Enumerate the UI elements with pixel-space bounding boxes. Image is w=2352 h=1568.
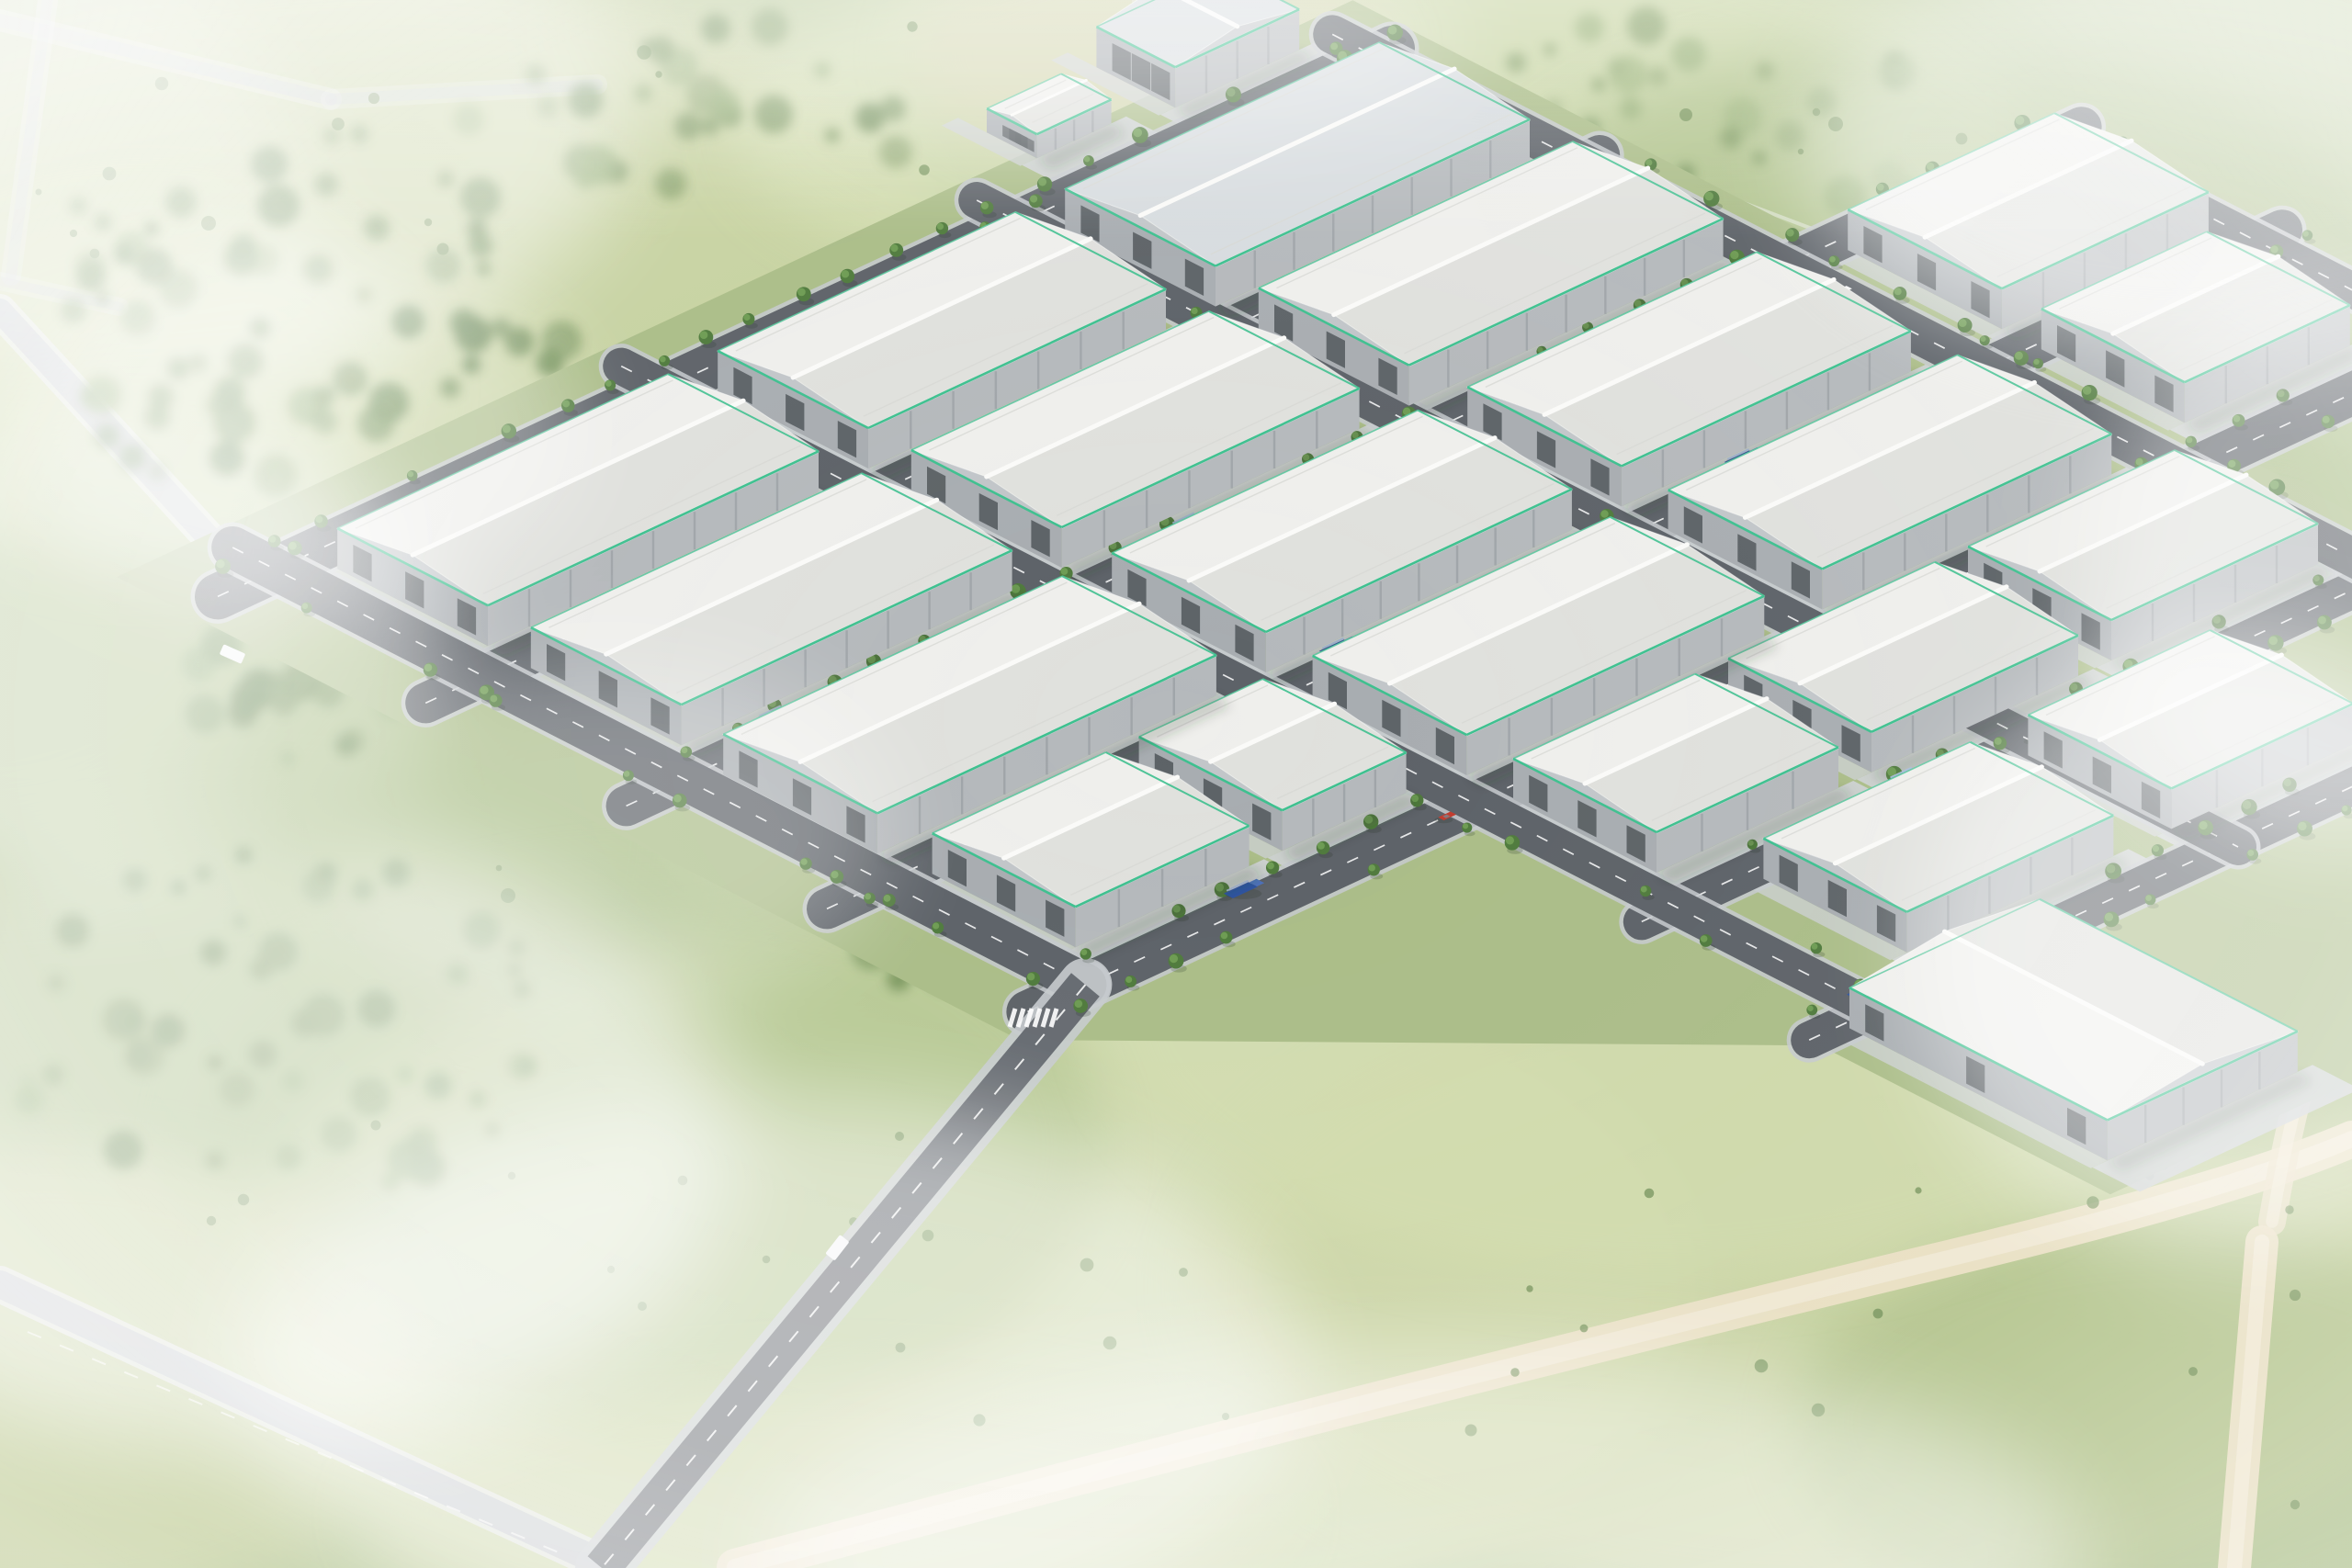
edge-vignette — [0, 0, 2352, 1568]
aerial-render-figure — [0, 0, 2352, 1568]
scene-svg — [0, 0, 2352, 1568]
fog — [0, 0, 2352, 1568]
